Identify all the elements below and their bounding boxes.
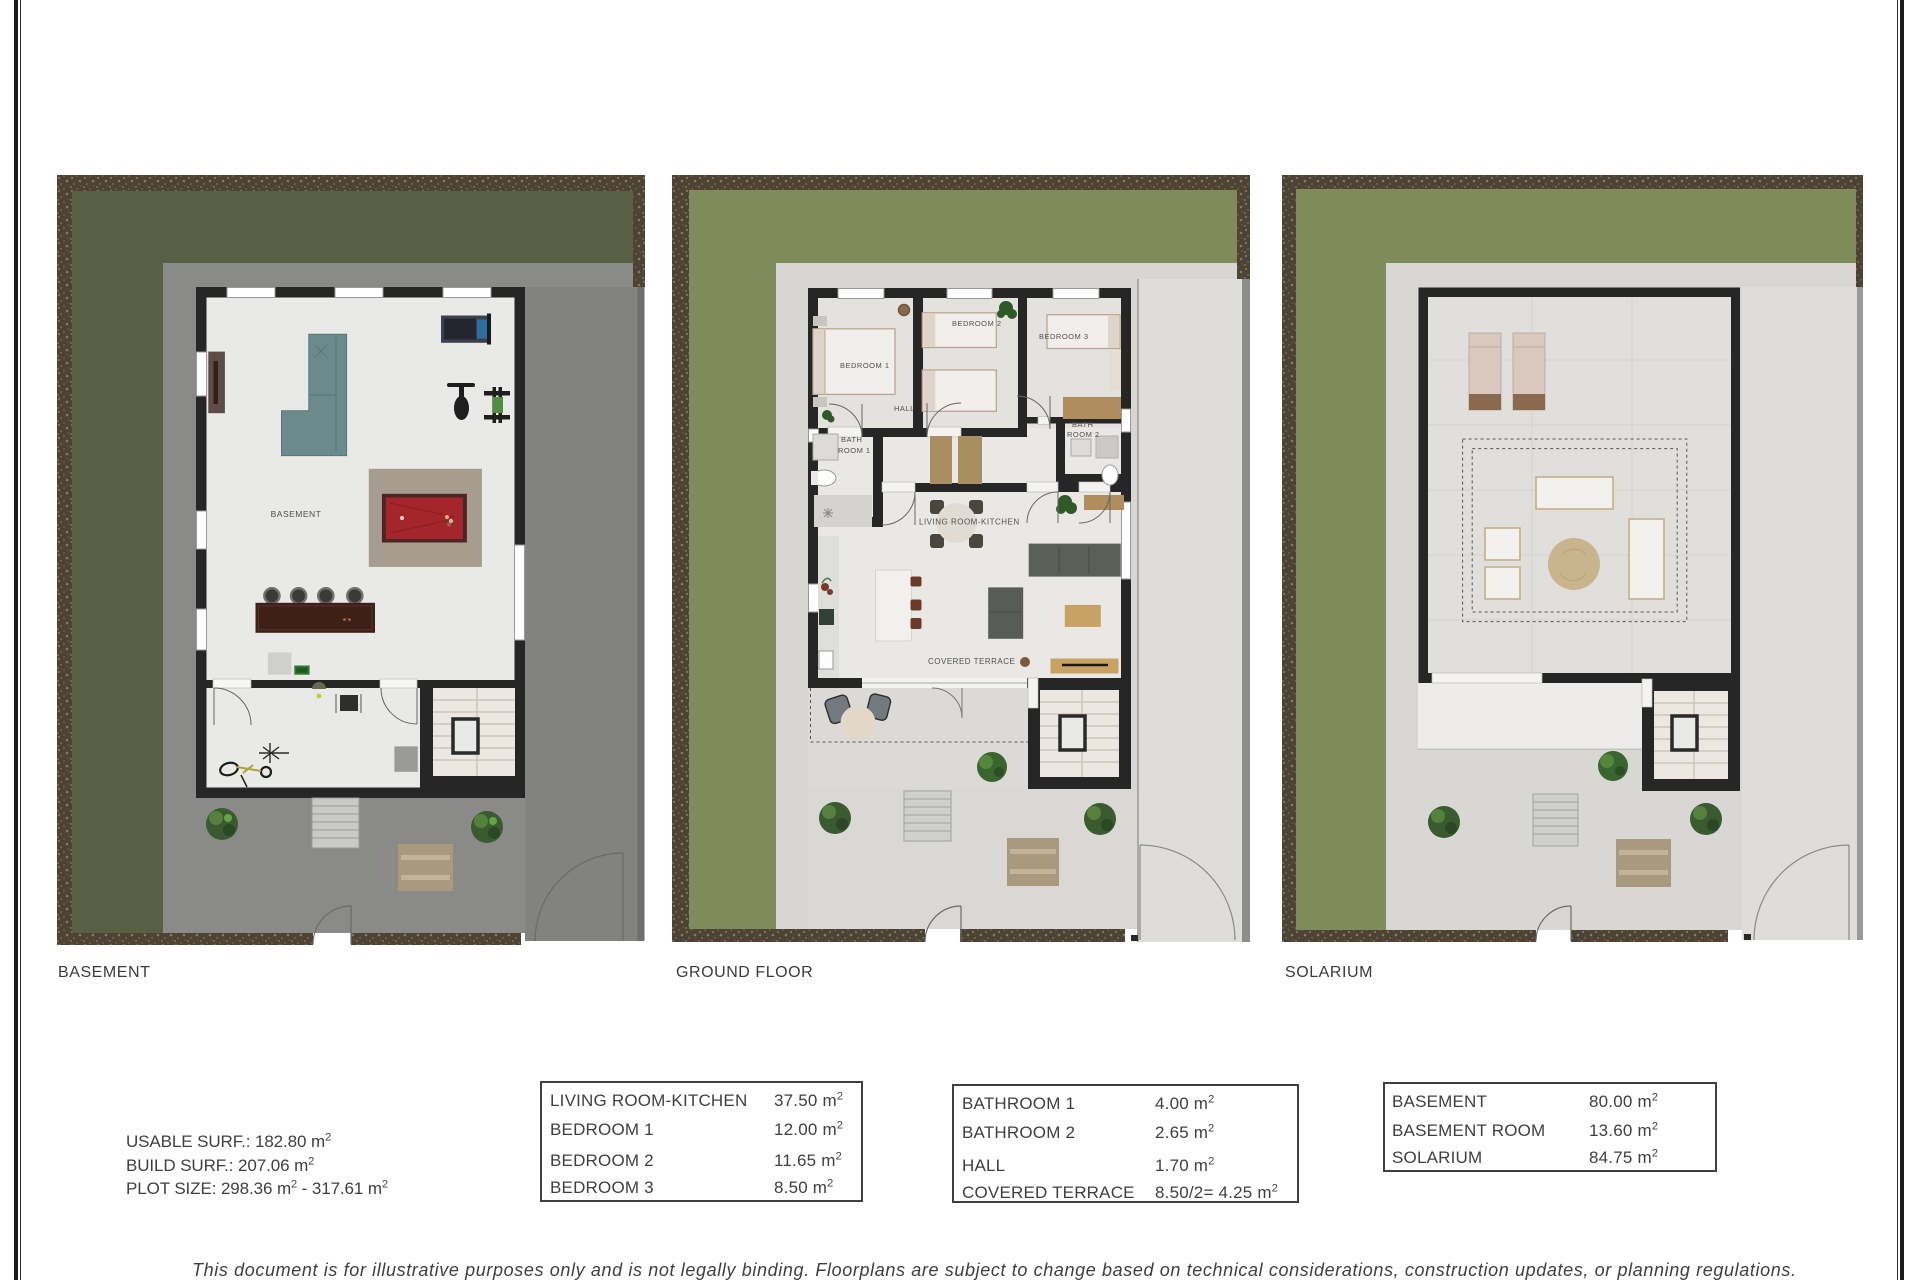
svg-text:LIVING ROOM-KITCHEN: LIVING ROOM-KITCHEN	[919, 518, 1020, 527]
svg-text:BATH: BATH	[841, 435, 862, 444]
svg-text:BEDROOM 3: BEDROOM 3	[1039, 332, 1089, 341]
svg-text:ROOM 1: ROOM 1	[838, 446, 871, 455]
svg-text:●□●: ●□●	[343, 617, 351, 622]
svg-text:BEDROOM 2: BEDROOM 2	[952, 319, 1002, 328]
svg-text:COVERED TERRACE: COVERED TERRACE	[928, 657, 1015, 666]
svg-text:BATH: BATH	[1072, 420, 1093, 429]
svg-text:ROOM 2: ROOM 2	[1067, 430, 1100, 439]
svg-text:BASEMENT: BASEMENT	[271, 509, 322, 519]
svg-text:HALL: HALL	[894, 404, 915, 413]
svg-text:BEDROOM 1: BEDROOM 1	[840, 361, 890, 370]
